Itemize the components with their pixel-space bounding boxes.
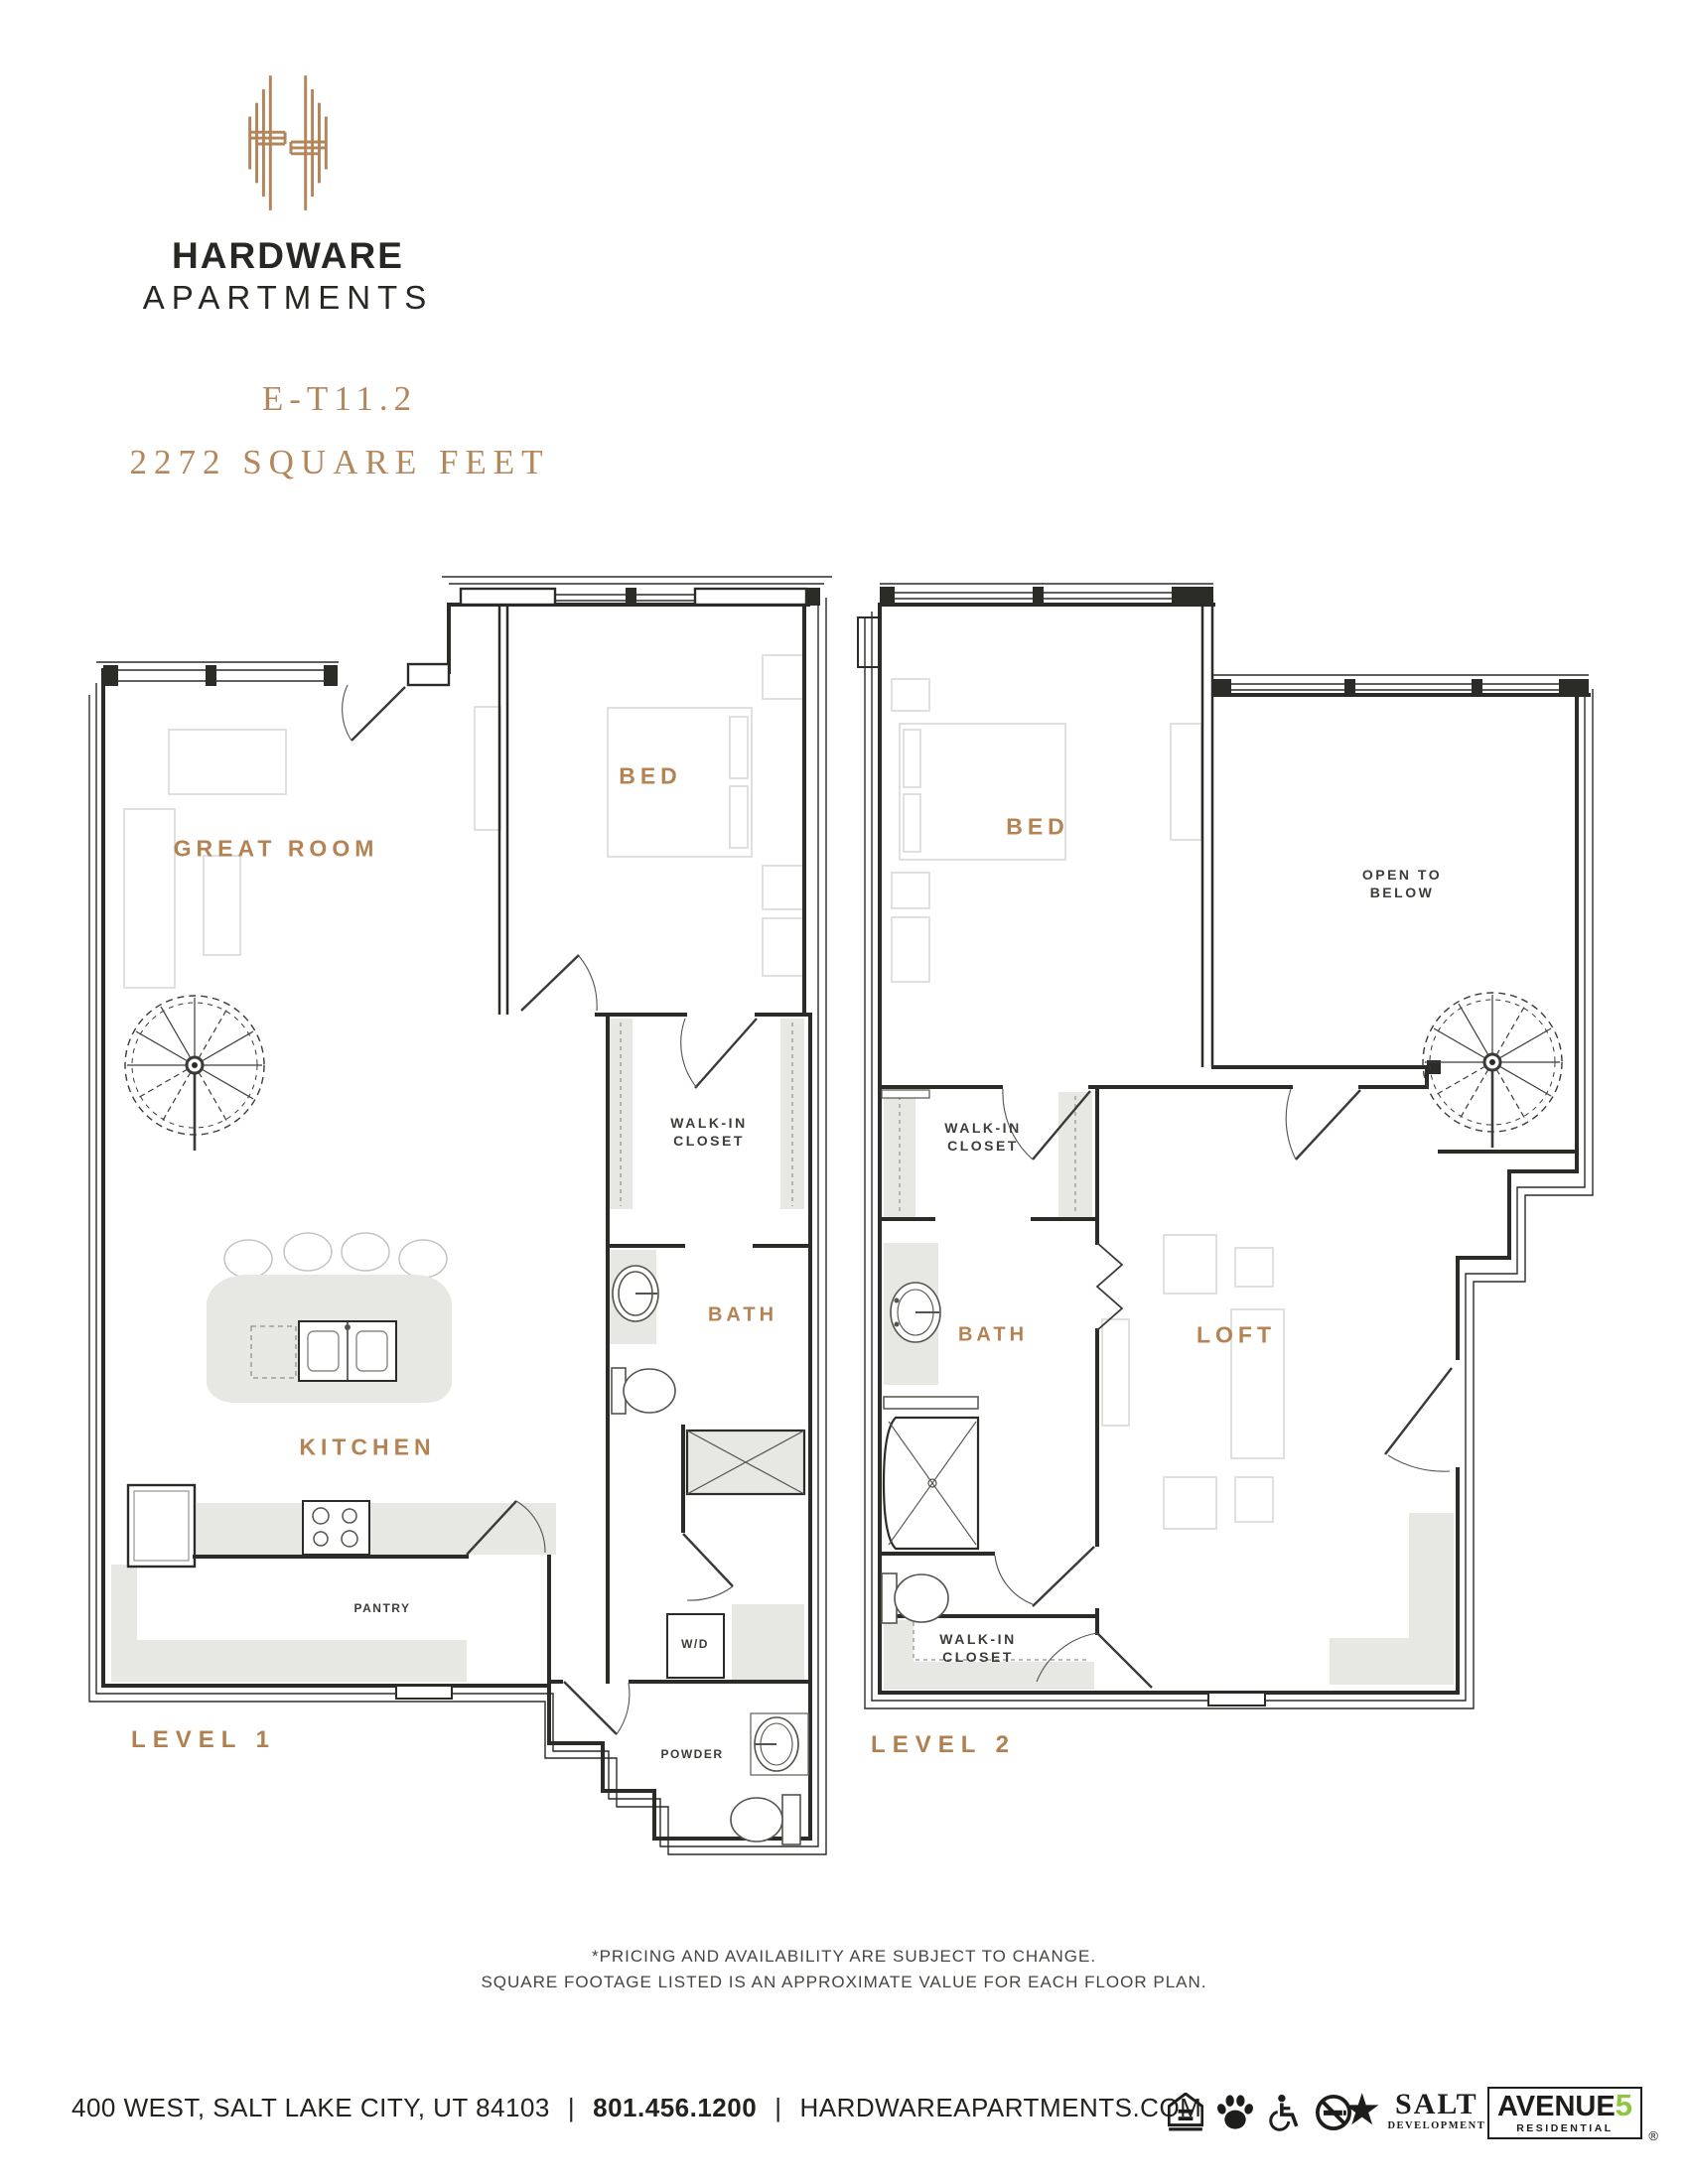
powder-fixtures — [731, 1713, 808, 1844]
fridge — [128, 1485, 195, 1567]
room-label-great-room: GREAT ROOM — [174, 836, 379, 863]
room-label-washer-dryer: W/D — [681, 1637, 709, 1653]
room-label-open-to-below: OPEN TO BELOW — [1362, 866, 1442, 901]
kitchen-sink — [299, 1321, 396, 1381]
disclaimer-line2: SQUARE FOOTAGE LISTED IS AN APPROXIMATE … — [0, 1970, 1688, 1995]
kitchen-island — [207, 1233, 452, 1403]
shower — [687, 1431, 804, 1494]
wall-niche — [1208, 1693, 1265, 1706]
level1-furniture — [124, 655, 804, 988]
room-label-bath-level1: BATH — [708, 1304, 777, 1327]
salt-name: SALT — [1387, 2090, 1485, 2119]
level2-label: LEVEL 2 — [871, 1731, 1016, 1759]
level1-plan — [89, 577, 832, 1854]
footer-separator: | — [774, 2093, 781, 2123]
room-label-kitchen: KITCHEN — [299, 1434, 435, 1461]
star-icon: ★ — [1342, 2089, 1381, 2132]
spiral-staircase-level1 — [125, 996, 264, 1151]
footer-phone[interactable]: 801.456.1200 — [593, 2093, 757, 2123]
floorplan-drawing — [0, 0, 1688, 2184]
room-label-walk-in-closet-upper-level2: WALK-IN CLOSET — [944, 1119, 1021, 1155]
level1-label: LEVEL 1 — [131, 1726, 276, 1754]
footer-compliance-icons — [1168, 2089, 1353, 2136]
salt-sub: DEVELOPMENT — [1387, 2120, 1485, 2131]
room-label-pantry: PANTRY — [354, 1601, 411, 1617]
level1-windows — [103, 588, 820, 686]
pet-friendly-icon — [1216, 2095, 1254, 2130]
footer-website-link[interactable]: HARDWAREAPARTMENTS.COM — [799, 2093, 1201, 2123]
room-label-walk-in-closet-lower-level2: WALK-IN CLOSET — [939, 1630, 1016, 1666]
spiral-staircase-level2 — [1423, 993, 1562, 1148]
room-label-walk-in-closet-level1: WALK-IN CLOSET — [670, 1114, 747, 1150]
accessible-icon — [1267, 2093, 1301, 2132]
stove — [303, 1501, 369, 1555]
disclaimer: *PRICING AND AVAILABILITY ARE SUBJECT TO… — [0, 1944, 1688, 1996]
bifold-door — [1097, 1243, 1122, 1330]
level1-inner-walls — [499, 605, 507, 1015]
avenue5-name: AVENUE — [1497, 2091, 1616, 2122]
wall-niche — [396, 1686, 452, 1699]
footer-contact-line: 400 WEST, SALT LAKE CITY, UT 84103 | 801… — [71, 2093, 1201, 2123]
level2-inner-walls — [1202, 605, 1212, 1067]
disclaimer-line1: *PRICING AND AVAILABILITY ARE SUBJECT TO… — [0, 1944, 1688, 1970]
room-label-powder: POWDER — [661, 1747, 724, 1763]
avenue5-five: 5 — [1616, 2088, 1632, 2122]
footer-separator: | — [568, 2093, 575, 2123]
room-label-loft: LOFT — [1196, 1322, 1276, 1349]
registered-mark: ® — [1648, 2128, 1658, 2143]
floorplan-sheet: HARDWARE APARTMENTS E-T11.2 2272 SQUARE … — [0, 0, 1688, 2184]
level2-floor-fills — [884, 1092, 1454, 1690]
room-label-bath-level2: BATH — [958, 1324, 1028, 1347]
level1-bath-fixtures — [612, 1266, 804, 1494]
footer-address: 400 WEST, SALT LAKE CITY, UT 84103 — [71, 2093, 550, 2123]
equal-housing-icon — [1168, 2093, 1203, 2132]
avenue5-sub: RESIDENTIAL — [1497, 2122, 1632, 2134]
avenue5-residential-logo: AVENUE5 RESIDENTIAL ® — [1487, 2087, 1642, 2139]
room-label-bed-level2: BED — [1006, 814, 1069, 841]
room-label-bed-level1: BED — [619, 763, 682, 790]
salt-development-logo: ★ SALT DEVELOPMENT — [1342, 2089, 1485, 2132]
shower — [884, 1418, 978, 1549]
footer: 400 WEST, SALT LAKE CITY, UT 84103 | 801… — [0, 2083, 1688, 2142]
